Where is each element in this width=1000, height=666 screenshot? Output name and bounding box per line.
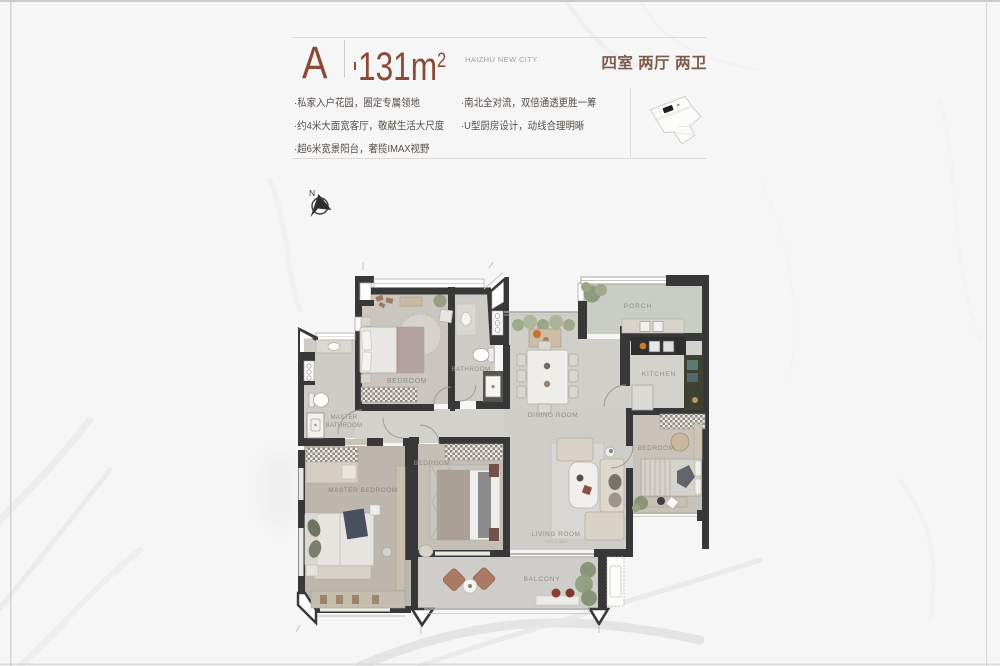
svg-text:KITCHEN: KITCHEN xyxy=(642,371,676,378)
svg-text:BEDROOM: BEDROOM xyxy=(637,445,674,452)
svg-text:MASTER BEDROOM: MASTER BEDROOM xyxy=(328,487,397,494)
svg-text:BATHROOM: BATHROOM xyxy=(326,423,363,429)
svg-text:PORCH: PORCH xyxy=(624,303,652,310)
svg-text:N: N xyxy=(309,188,315,198)
svg-text:BATHROOM: BATHROOM xyxy=(451,366,490,373)
svg-text:BALCONY: BALCONY xyxy=(524,576,561,583)
svg-text:BEDROOM: BEDROOM xyxy=(387,378,427,385)
svg-text:LIVING ROOM: LIVING ROOM xyxy=(532,531,581,538)
svg-text:DINING ROOM: DINING ROOM xyxy=(528,412,578,419)
svg-text:4000 X 4600: 4000 X 4600 xyxy=(545,539,568,544)
